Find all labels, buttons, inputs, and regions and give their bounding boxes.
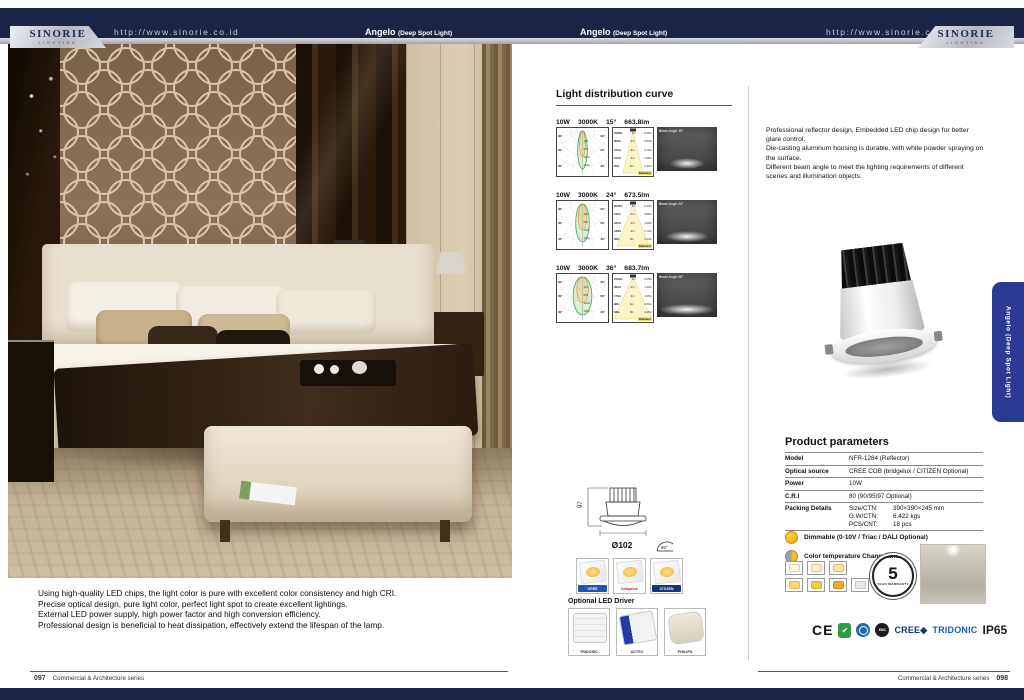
row-beam-angle: 15° [606, 119, 616, 126]
intro-line: Professional reflector design, Embedded … [766, 126, 984, 144]
distribution-row: 10W 3000K 36° 683.7lm 90° 60° [556, 262, 748, 323]
row-cct: 3000K [578, 192, 598, 199]
svg-text:60°: 60° [558, 294, 563, 298]
cct-swatch [807, 578, 825, 592]
cct-swatch [807, 561, 825, 575]
distribution-row-header: 10W 3000K 24° 673.5lm [556, 189, 748, 199]
dimension-svg: 97 [574, 486, 670, 540]
svg-text:1600: 1600 [584, 309, 591, 313]
cone-rows: 2435lx1m0.26m609lx2m0.53m271lx3m0.79m152… [614, 132, 652, 168]
brand-name: SINORIE [30, 29, 87, 40]
svg-text:1600: 1600 [584, 163, 591, 167]
tridonic-logo: TRIDONIC [932, 625, 977, 635]
photo-teapot [352, 361, 367, 374]
brand-name: SINORIE [938, 29, 995, 40]
series-label: Commercial & Architecture series [898, 675, 989, 682]
cone-data-row: 82lx5m2.13m [614, 238, 652, 241]
row-power: 10W [556, 119, 570, 126]
description-line: External LED power supply, high power fa… [38, 609, 490, 620]
application-photo [920, 544, 986, 604]
bottom-bar [0, 688, 1024, 700]
distribution-row-header: 10W 3000K 15° 663.8lm [556, 116, 748, 126]
photo-bench-leg [440, 520, 450, 542]
driver-cards: TRIDONICACTECPHILIPS [568, 608, 706, 656]
cone-data-row: 152lx4m1.05m [614, 157, 652, 160]
svg-text:30°: 30° [601, 164, 606, 168]
photo-bench [204, 426, 472, 522]
led-chip-options: CREEbridgeluxCITIZEN [576, 558, 683, 594]
driver-brand: TRIDONIC [569, 650, 609, 654]
swatch-row [785, 578, 869, 592]
product-title-right: Angelo (Deep Spot Light) [580, 27, 667, 37]
driver-options: Optional LED Driver TRIDONICACTECPHILIPS [568, 598, 706, 656]
beam-glow [670, 158, 705, 169]
cone-diagram: 2435lx1m0.26m609lx2m0.53m271lx3m0.79m152… [612, 127, 654, 177]
ip65-rating: IP65 [983, 623, 1008, 637]
svg-text:60°: 60° [558, 148, 563, 152]
svg-text:30°: 30° [558, 310, 563, 314]
svg-text:60°: 60° [601, 221, 606, 225]
param-row: Power10W [785, 477, 983, 490]
cone-data-row: 174lx3m1.95m [614, 295, 652, 298]
brand-tagline: LIGHTING [947, 40, 986, 45]
parameters-table: ModelNFR-1284 (Reflector)Optical sourceC… [785, 452, 983, 531]
lamp-screw [934, 331, 943, 342]
row-lumens: 663.8lm [624, 119, 649, 126]
emc-badge: EMC [875, 623, 889, 637]
cone-data-row: 511lx2m0.85m [614, 213, 652, 216]
cone-data-row: 98lx4m2.60m [614, 303, 652, 306]
svg-text:400: 400 [584, 285, 589, 289]
driver-brand: PHILIPS [665, 650, 705, 654]
cone-data-row: 271lx3m0.79m [614, 149, 652, 152]
led-chip-brand: CREE [578, 585, 607, 592]
cone-rows: 2045lx1m0.43m511lx2m0.85m227lx3m1.28m128… [614, 205, 652, 241]
side-tab-label: Angelo (Deep Spot Light) [1005, 306, 1012, 398]
swatch-row [785, 561, 869, 575]
photo-side-table [8, 340, 54, 482]
svg-text:400: 400 [584, 139, 589, 143]
product-type: (Deep Spot Light) [398, 30, 452, 37]
cone-diagram: 1564lx1m0.65m391lx2m1.30m174lx3m1.95m98l… [612, 273, 654, 323]
svg-text:90°: 90° [601, 280, 606, 284]
cone-data-row: 2045lx1m0.43m [614, 205, 652, 208]
svg-text:60°: 60° [601, 294, 606, 298]
polar-distribution-chart: 90° 60° 30° 90° 60° 30° 400 800 1200 160… [556, 273, 609, 323]
svg-text:1200: 1200 [584, 228, 591, 232]
svg-text:1600: 1600 [584, 236, 591, 240]
row-cct: 3000K [578, 265, 598, 272]
brand-url-left: http://www.sinorie.co.id [114, 27, 239, 37]
svg-text:1200: 1200 [584, 301, 591, 305]
param-row: Optical sourceCREE COB (bridgelux / CITI… [785, 465, 983, 478]
param-row: ModelNFR-1284 (Reflector) [785, 452, 983, 465]
cct-swatch [851, 578, 869, 592]
product-intro: Professional reflector design, Embedded … [766, 126, 984, 181]
lamp-screw [824, 344, 833, 355]
svg-text:60°: 60° [601, 148, 606, 152]
photo-bench-leg [220, 520, 230, 542]
cone-data-row: 97lx5m1.32m [614, 165, 652, 168]
svg-text:30°: 30° [601, 310, 606, 314]
side-tab: Angelo (Deep Spot Light) [992, 282, 1024, 422]
driver-card: PHILIPS [664, 608, 706, 656]
photo-cup [314, 364, 324, 374]
warranty-badge: 5 YEAR WARRANTY [872, 555, 914, 597]
tilt-angle-value: 80° [661, 545, 668, 550]
photo-table-lamp-2 [436, 252, 466, 274]
beam-angle-label: Beam Angle 15° [659, 129, 683, 133]
param-row: C.R.I80 (90/95/97 Optional) [785, 490, 983, 503]
rohs-badge: ✔ [838, 623, 851, 638]
beam-effect-photo: Beam Angle 36° [657, 273, 717, 317]
left-description: Using high-quality LED chips, the light … [38, 588, 490, 630]
beam-glow [665, 231, 709, 242]
polar-lobe-inner [577, 277, 588, 303]
led-chip-brand: CITIZEN [652, 585, 681, 592]
cone-data-row: 391lx2m1.30m [614, 286, 652, 289]
distribution-row-header: 10W 3000K 36° 683.7lm [556, 262, 748, 272]
warranty-text: YEAR WARRANTY [877, 582, 909, 586]
row-beam-angle: 24° [606, 192, 616, 199]
led-chip-card: bridgelux [613, 558, 646, 594]
svg-text:90°: 90° [601, 207, 606, 211]
svg-text:30°: 30° [601, 237, 606, 241]
svg-text:800: 800 [584, 147, 589, 151]
led-chip-card: CITIZEN [650, 558, 683, 594]
description-line: Using high-quality LED chips, the light … [38, 588, 490, 599]
row-cct: 3000K [578, 119, 598, 126]
svg-text:400: 400 [584, 212, 589, 216]
cone-diameter-label: Diameter [638, 171, 652, 175]
cct-swatch [829, 561, 847, 575]
cone-diameter-label: Diameter [638, 317, 652, 321]
svg-text:90°: 90° [558, 280, 563, 284]
bedroom-photo [8, 44, 512, 578]
photo-curtain [482, 44, 512, 448]
quality-badge [856, 623, 870, 637]
dimmable-icon [785, 531, 798, 544]
cree-logo: CREE◆ [894, 625, 927, 636]
series-label: Commercial & Architecture series [53, 675, 144, 682]
svg-text:30°: 30° [558, 164, 563, 168]
downlight-product-photo [807, 239, 952, 388]
feature-dimmable: Dimmable (0-10V / Triac / DALI Optional) [785, 531, 995, 544]
section-title-light-distribution: Light distribution curve [556, 88, 732, 106]
cone-data-row: 227lx3m1.28m [614, 222, 652, 225]
polar-lobe-inner [580, 131, 586, 157]
driver-section-title: Optional LED Driver [568, 598, 706, 605]
photo-pillow [276, 290, 376, 334]
svg-text:90°: 90° [558, 207, 563, 211]
page-number-left: 097 [34, 675, 46, 682]
column-divider [748, 86, 749, 660]
product-type: (Deep Spot Light) [613, 30, 667, 37]
driver-brand: ACTEC [617, 650, 657, 654]
product-name: Angelo [580, 27, 611, 37]
description-line: Professional design is beneficial to hea… [38, 620, 490, 631]
polar-lobe-inner [578, 204, 586, 230]
photo-breakfast-tray [300, 360, 396, 386]
product-parameters: Product parameters ModelNFR-1284 (Reflec… [785, 436, 983, 531]
page-number-right: 098 [996, 675, 1008, 682]
cone-data-row: 128lx4m1.70m [614, 230, 652, 233]
beam-angle-label: Beam Angle 36° [659, 275, 683, 279]
certification-row: CE ✔ EMC CREE◆ TRIDONIC IP65 [812, 622, 1007, 638]
cone-data-row: 63lx5m3.25m [614, 311, 652, 314]
ce-mark: CE [812, 622, 833, 638]
brand-tagline: LIGHTING [39, 40, 78, 45]
row-power: 10W [556, 265, 570, 272]
intro-line: Die-casting aluminum housing is durable,… [766, 144, 984, 162]
driver-card: TRIDONIC [568, 608, 610, 656]
row-lumens: 673.5lm [624, 192, 649, 199]
cone-diameter-label: Diameter [638, 244, 652, 248]
led-chip-card: CREE [576, 558, 609, 594]
svg-text:800: 800 [584, 293, 589, 297]
footer-right: Commercial & Architecture series 098 [898, 675, 1008, 682]
footer-rule-right [758, 671, 1010, 672]
row-beam-angle: 36° [606, 265, 616, 272]
cone-data-row: 2435lx1m0.26m [614, 132, 652, 135]
dimension-height: 97 [578, 501, 584, 508]
row-lumens: 683.7lm [624, 265, 649, 272]
svg-text:90°: 90° [558, 134, 563, 138]
svg-text:90°: 90° [601, 134, 606, 138]
cone-data-row: 609lx2m0.53m [614, 140, 652, 143]
footer-left: 097 Commercial & Architecture series [34, 675, 144, 682]
cone-rows: 1564lx1m0.65m391lx2m1.30m174lx3m1.95m98l… [614, 278, 652, 314]
product-name: Angelo [365, 27, 396, 37]
polar-distribution-chart: 90° 60° 30° 90° 60° 30° 400 800 1200 160… [556, 127, 609, 177]
beam-angle-label: Beam Angle 24° [659, 202, 683, 206]
distribution-rows: 10W 3000K 15° 663.8lm 90° 60° [556, 116, 748, 335]
cone-data-row: 1564lx1m0.65m [614, 278, 652, 281]
footer-rule-left [30, 671, 508, 672]
svg-text:1200: 1200 [584, 155, 591, 159]
cct-swatch [785, 578, 803, 592]
led-chip-brand: bridgelux [615, 585, 644, 592]
svg-text:800: 800 [584, 220, 589, 224]
svg-text:30°: 30° [558, 237, 563, 241]
beam-glow [659, 304, 715, 315]
distribution-row: 10W 3000K 24° 673.5lm 90° 60° [556, 189, 748, 250]
polar-distribution-chart: 90° 60° 30° 90° 60° 30° 400 800 1200 160… [556, 200, 609, 250]
warranty-years: 5 [888, 566, 897, 582]
cct-swatch [829, 578, 847, 592]
product-parameters-title: Product parameters [785, 436, 983, 448]
cct-swatches [785, 561, 869, 595]
cct-swatch [785, 561, 803, 575]
catalog-spread: SINORIE LIGHTING http://www.sinorie.co.i… [0, 0, 1024, 700]
intro-line: Different beam angle to meet the lightin… [766, 163, 984, 181]
photo-cup [330, 365, 339, 374]
distribution-row: 10W 3000K 15° 663.8lm 90° 60° [556, 116, 748, 177]
description-line: Precise optical design, pure light color… [38, 599, 490, 610]
product-title-left: Angelo (Deep Spot Light) [365, 27, 452, 37]
feature-label: Dimmable (0-10V / Triac / DALI Optional) [804, 534, 928, 541]
cone-diagram: 2045lx1m0.43m511lx2m0.85m227lx3m1.28m128… [612, 200, 654, 250]
beam-effect-photo: Beam Angle 24° [657, 200, 717, 244]
svg-text:60°: 60° [558, 221, 563, 225]
param-row-packing: Packing DetailsSize/CTN:390×390×245 mmG.… [785, 502, 983, 531]
beam-effect-photo: Beam Angle 15° [657, 127, 717, 171]
row-power: 10W [556, 192, 570, 199]
driver-card: ACTEC [616, 608, 658, 656]
